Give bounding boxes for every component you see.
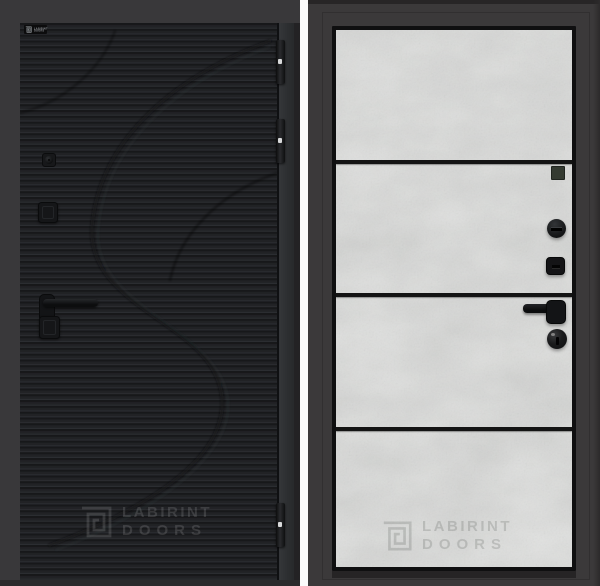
insert-stripe-3: [336, 427, 572, 431]
front-door-edge: [279, 23, 294, 580]
brand-plate-text: LABIRINT DOORS: [34, 28, 48, 32]
cylinder-knob: [42, 153, 56, 167]
lock-escutcheon-upper: [38, 202, 58, 223]
maze-logo-icon: [25, 26, 32, 33]
hinge-pin: [278, 138, 282, 143]
floor-shadow: [0, 580, 300, 586]
frame-right-shading: [593, 0, 600, 586]
panel-divider: [300, 0, 308, 586]
back-door-panel: LABIRINT DOORS: [308, 0, 600, 586]
hinge-pin: [278, 59, 282, 64]
maze-logo-icon: [78, 504, 114, 540]
insert-stripe-1: [336, 160, 572, 164]
brand-plate: LABIRINT DOORS: [24, 25, 47, 34]
leaf-bottom-shadow: [332, 571, 576, 578]
watermark-text: LABIRINT DOORS: [422, 518, 512, 554]
lock-escutcheon-lower: [39, 316, 60, 339]
concrete-texture: [336, 30, 572, 567]
hinge-bottom: [276, 503, 285, 547]
peephole: [551, 166, 565, 180]
hinge-top: [276, 40, 285, 84]
handle-backplate: [546, 300, 566, 324]
maze-logo-icon: [380, 519, 414, 553]
door-product-photo: LABIRINT DOORS LABIRINT DOORS: [0, 0, 600, 586]
lock-escutcheon: [546, 257, 565, 275]
hinge-pin: [278, 522, 282, 527]
watermark-text: LABIRINT DOORS: [122, 504, 212, 540]
cylinder-glint: [551, 333, 555, 336]
watermark-back: LABIRINT DOORS: [380, 518, 512, 554]
keyhole-slot: [556, 337, 559, 345]
front-door-leaf: LABIRINT DOORS LABIRINT DOORS: [20, 23, 294, 580]
thumb-turn-slot: [551, 227, 562, 231]
lever-handle: [43, 299, 98, 307]
watermark-front: LABIRINT DOORS: [78, 504, 212, 540]
knob-center-dot: [48, 159, 50, 161]
key-cylinder: [547, 329, 567, 349]
escutcheon-inner: [43, 320, 56, 335]
hinge-middle: [276, 119, 285, 163]
escutcheon-slot: [552, 265, 560, 269]
back-door-leaf: LABIRINT DOORS: [336, 30, 572, 567]
frame-top-edge: [308, 0, 600, 4]
thumb-turn: [547, 219, 566, 238]
escutcheon-inner: [42, 206, 54, 219]
insert-stripe-2: [336, 293, 572, 297]
